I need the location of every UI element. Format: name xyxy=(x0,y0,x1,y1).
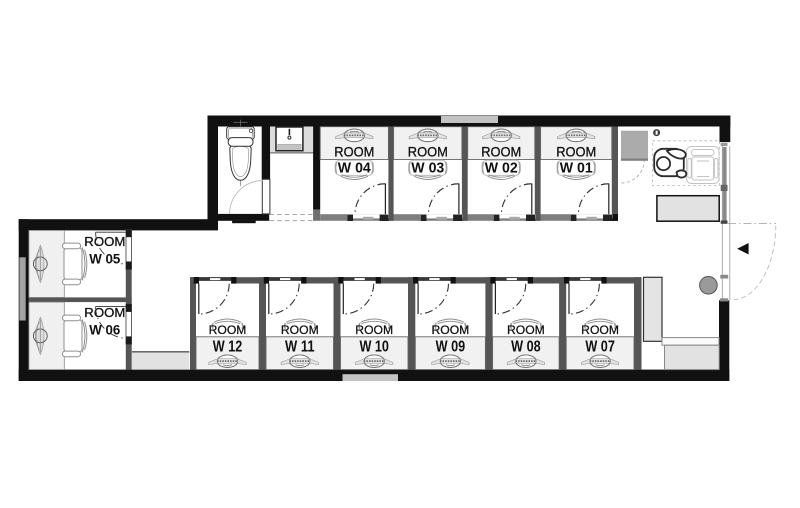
svg-text:ROOM: ROOM xyxy=(432,323,470,337)
svg-text:W 08: W 08 xyxy=(511,338,541,355)
svg-text:W 04: W 04 xyxy=(338,160,372,177)
svg-text:W 10: W 10 xyxy=(359,338,389,355)
svg-text:W 05: W 05 xyxy=(89,251,120,267)
svg-text:W 09: W 09 xyxy=(436,338,466,355)
svg-text:ROOM: ROOM xyxy=(481,144,521,159)
svg-text:ROOM: ROOM xyxy=(281,323,319,337)
svg-text:ROOM: ROOM xyxy=(408,144,448,159)
svg-text:W 02: W 02 xyxy=(485,160,518,177)
svg-text:ROOM: ROOM xyxy=(209,323,247,337)
svg-text:ROOM: ROOM xyxy=(84,234,125,249)
svg-text:W 12: W 12 xyxy=(213,338,243,355)
svg-text:ROOM: ROOM xyxy=(507,323,545,337)
svg-text:ROOM: ROOM xyxy=(581,323,619,337)
svg-text:W 01: W 01 xyxy=(560,160,593,177)
svg-text:ROOM: ROOM xyxy=(556,144,596,159)
svg-text:W 07: W 07 xyxy=(585,338,615,355)
svg-text:ROOM: ROOM xyxy=(355,323,393,337)
svg-text:W 03: W 03 xyxy=(411,160,444,177)
svg-text:ROOM: ROOM xyxy=(334,144,374,159)
svg-text:W 11: W 11 xyxy=(285,338,315,355)
svg-text:ROOM: ROOM xyxy=(84,305,125,320)
